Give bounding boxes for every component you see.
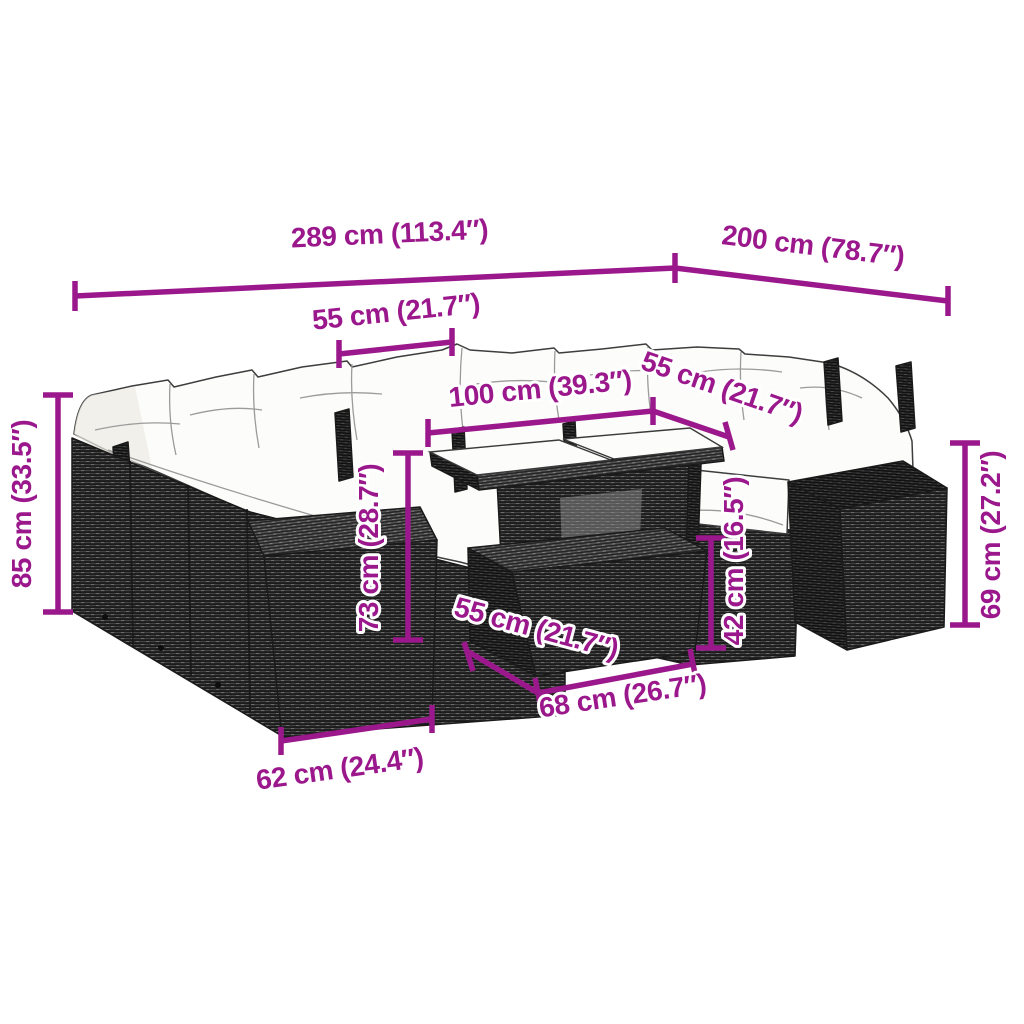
product-dimension-diagram: 289 cm (113.4″) 200 cm (78.7″) 55 cm (21… [0, 0, 1024, 1024]
dim-total-depth: 200 cm (78.7″) [675, 219, 948, 316]
dim-total-width: 289 cm (113.4″) [75, 214, 675, 311]
dim-label: 69 cm (27.2″) [975, 451, 1006, 620]
rivet [102, 614, 108, 620]
dim-total-height: 85 cm (33.5″) [6, 395, 73, 612]
frame-post [824, 358, 842, 425]
dim-label: 200 cm (78.7″) [720, 219, 906, 272]
dim-line [675, 268, 948, 301]
dim-label: 55 cm (21.7″) [311, 287, 482, 335]
dim-label: 42 cm (16.5″) [718, 477, 749, 646]
right-armrest-box [788, 461, 947, 650]
dim-label: 73 cm (28.7″) [353, 464, 384, 633]
dim-label: 289 cm (113.4″) [290, 214, 489, 254]
dim-armrest-height: 69 cm (27.2″) [950, 443, 1006, 625]
rivet [215, 682, 221, 688]
dim-label: 85 cm (33.5″) [6, 420, 37, 589]
rivet [158, 645, 164, 651]
frame-post [335, 409, 353, 481]
dim-line [75, 268, 675, 296]
armrest-front-face [840, 488, 947, 650]
diagram-canvas: 289 cm (113.4″) 200 cm (78.7″) 55 cm (21… [0, 0, 1024, 1024]
